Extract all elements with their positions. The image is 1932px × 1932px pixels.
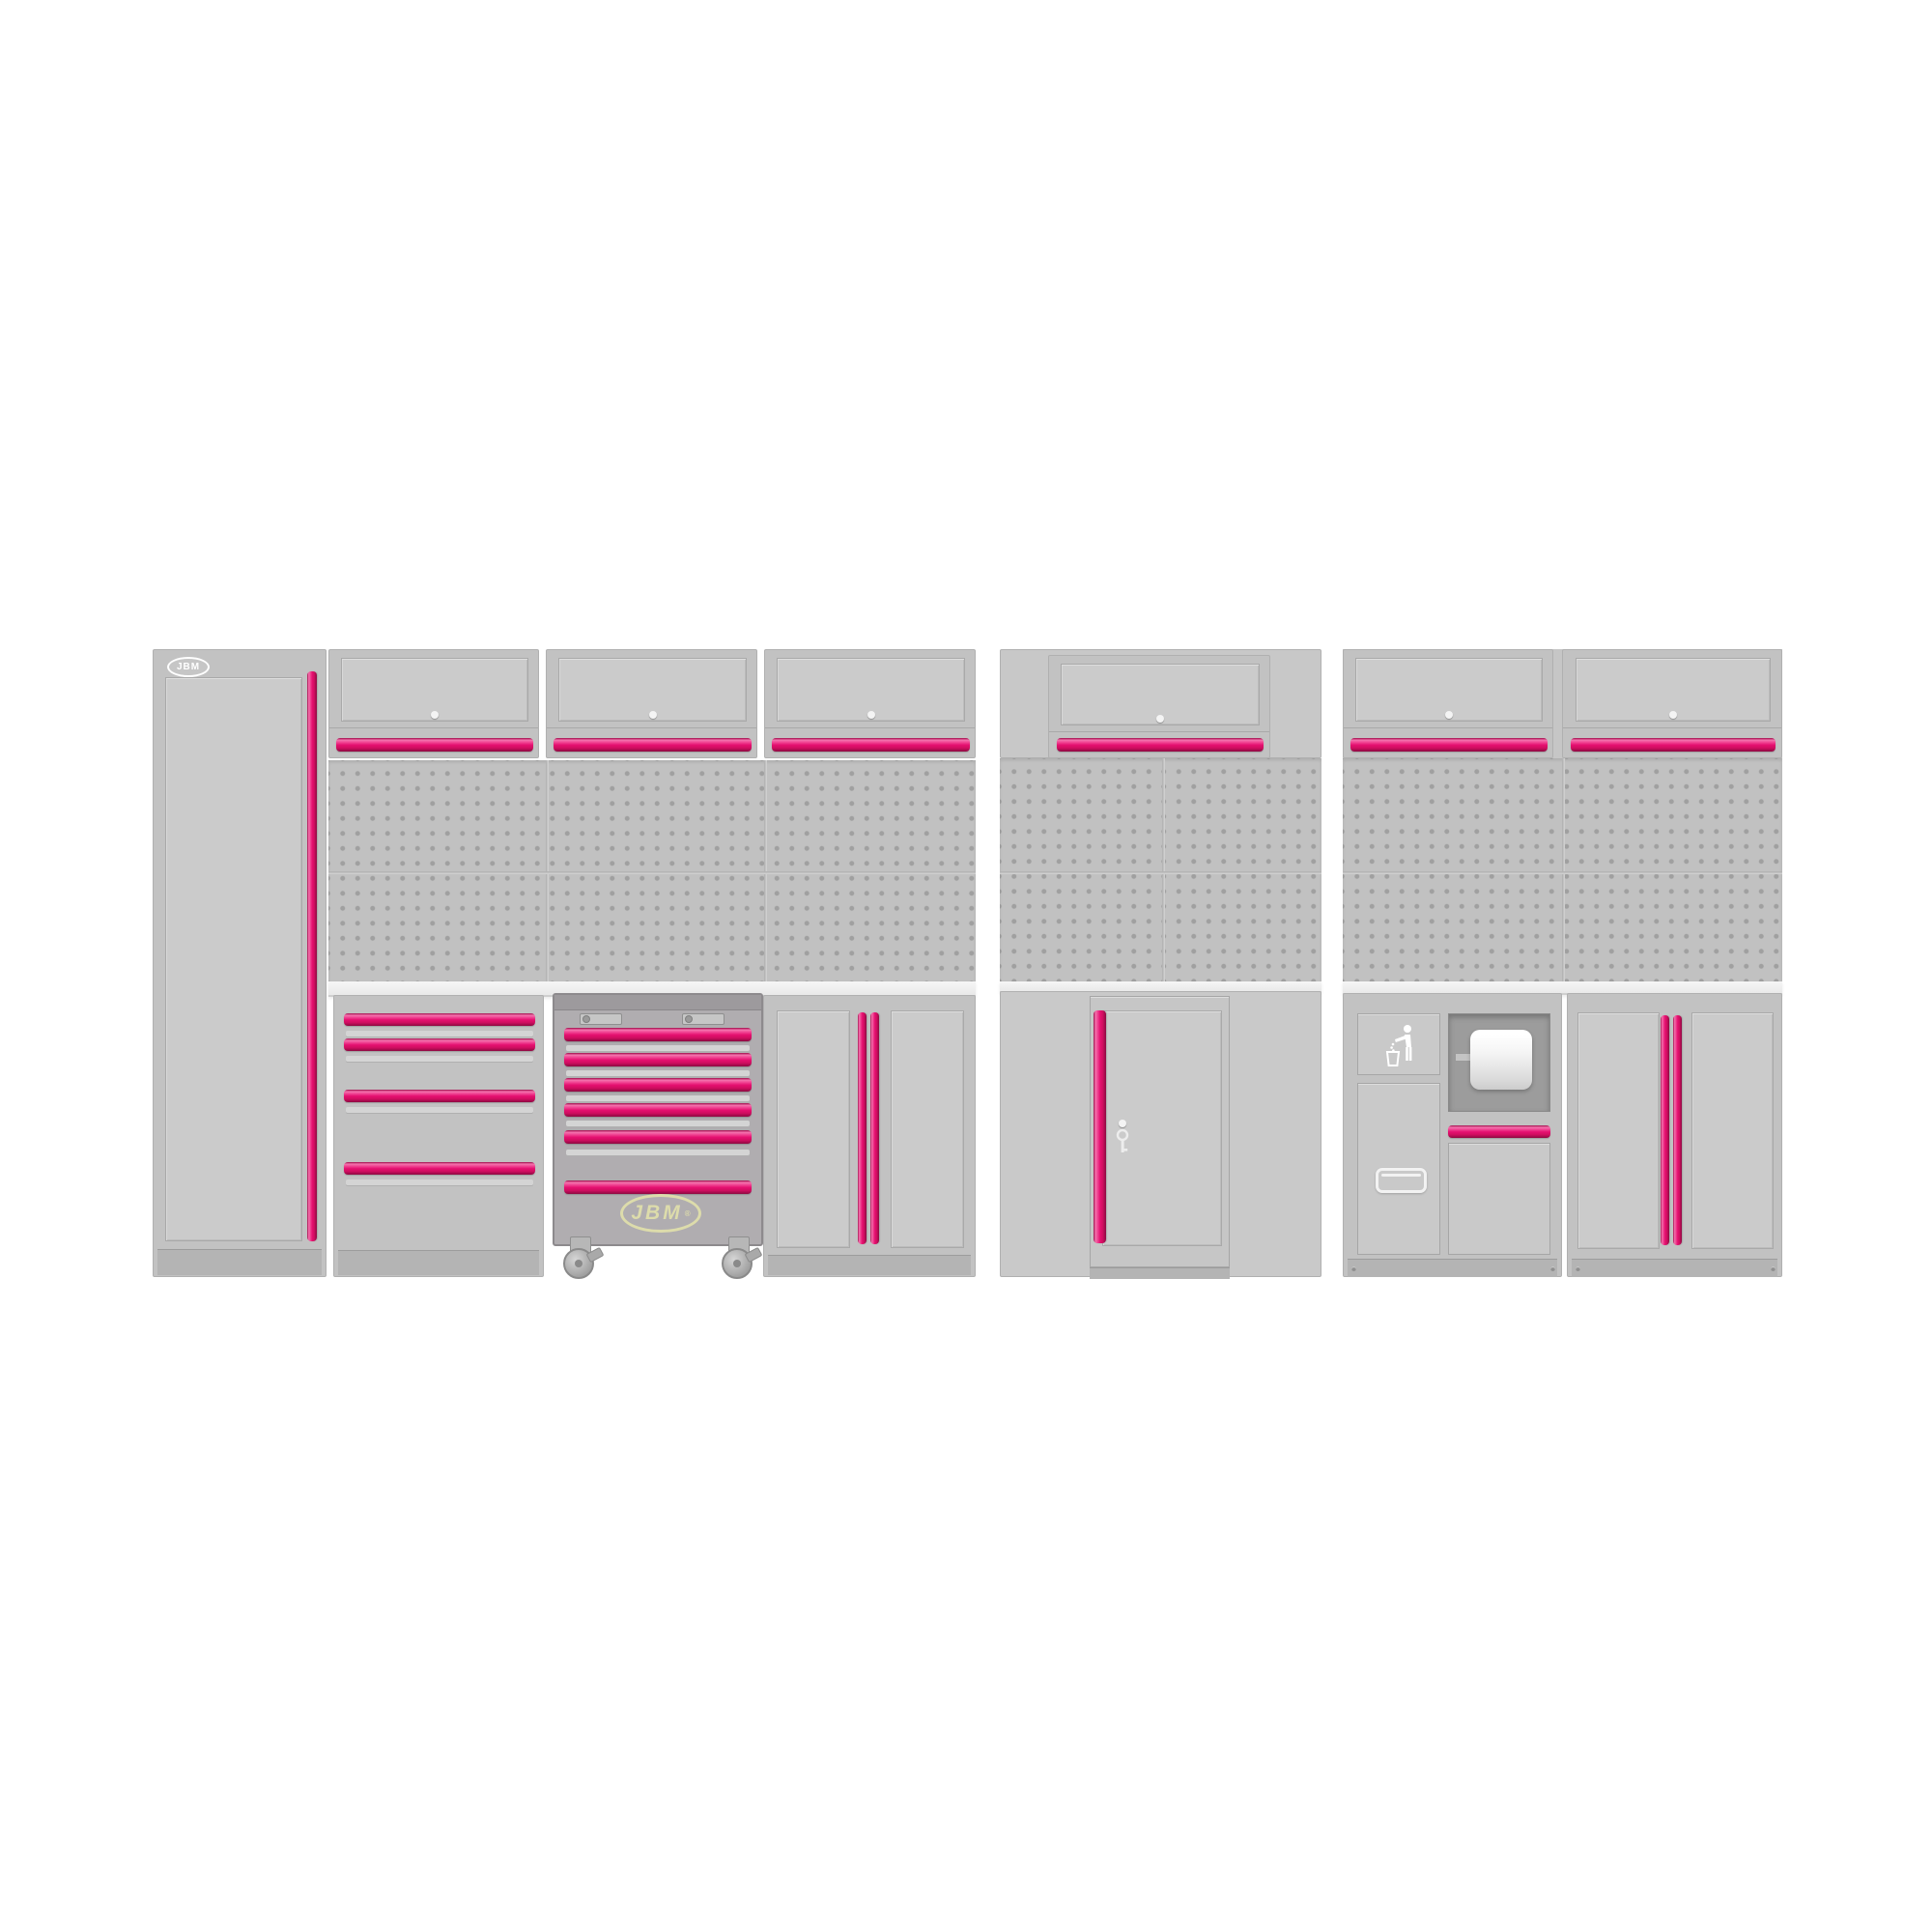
right-section-door-handle-left <box>1661 1015 1669 1245</box>
trash-pictogram-icon <box>1383 1024 1418 1068</box>
station-drawer-handle <box>1448 1125 1550 1138</box>
wall-cabinet-right-2 <box>1562 649 1782 758</box>
station-lower-face <box>1448 1143 1550 1255</box>
wall-cabinet-right-1-keyhole-icon <box>1445 711 1453 719</box>
right-section-door-handle-right <box>1673 1015 1682 1245</box>
right-section-right-door <box>1691 1012 1774 1249</box>
right-section <box>0 0 1932 1932</box>
pegboard-right <box>1343 758 1782 981</box>
wall-cabinet-right-2-handle <box>1571 738 1776 752</box>
right-section-plinth <box>1572 1259 1777 1277</box>
trash-sign-panel <box>1357 1013 1440 1075</box>
wall-cabinet-right-1-handle <box>1350 738 1548 752</box>
station-tray-handle <box>1376 1168 1427 1193</box>
paper-roll <box>1470 1030 1532 1090</box>
double-door-cabinet-right-section <box>1567 993 1782 1277</box>
right-section-left-door <box>1577 1012 1660 1249</box>
station-plinth <box>1348 1259 1557 1277</box>
waste-paper-station <box>1343 993 1562 1277</box>
wall-cabinet-right-2-keyhole-icon <box>1669 711 1677 719</box>
paper-roll-recess <box>1448 1013 1550 1112</box>
product-image-jbm-garage-system: JBM <box>0 0 1932 1932</box>
wall-cabinet-right-1 <box>1343 649 1553 758</box>
